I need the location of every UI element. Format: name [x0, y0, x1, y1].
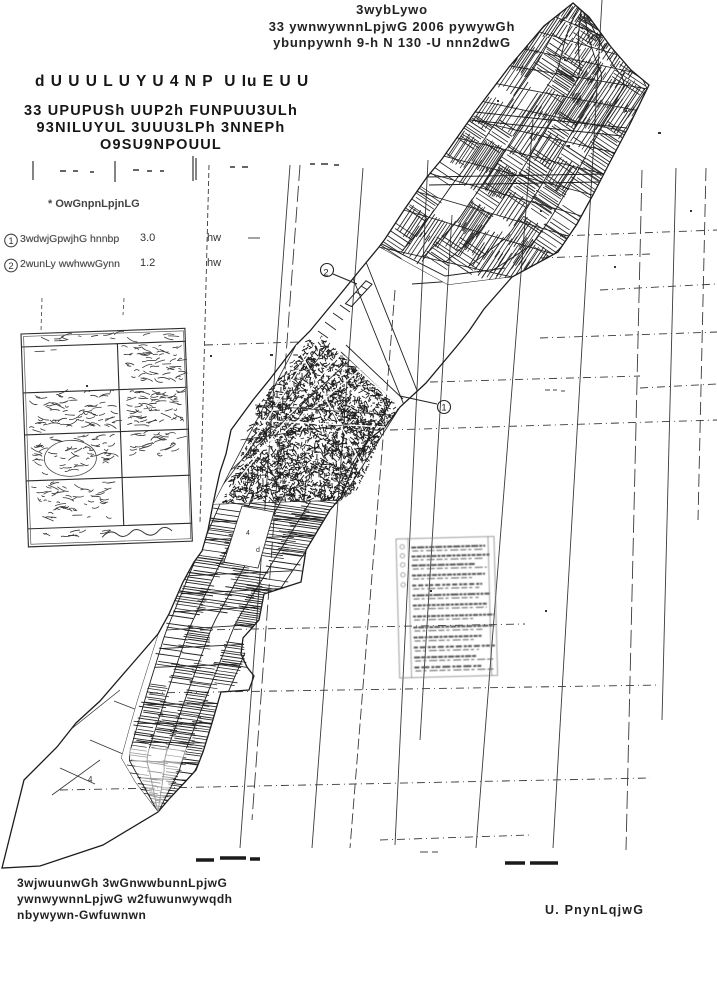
svg-text:4: 4: [246, 530, 250, 537]
svg-text:2: 2: [323, 268, 328, 279]
svg-text:d: d: [256, 547, 260, 554]
svg-text:4: 4: [88, 775, 93, 784]
svg-text:1: 1: [8, 236, 13, 247]
svg-text:2: 2: [8, 261, 13, 272]
svg-text:1: 1: [441, 403, 446, 414]
